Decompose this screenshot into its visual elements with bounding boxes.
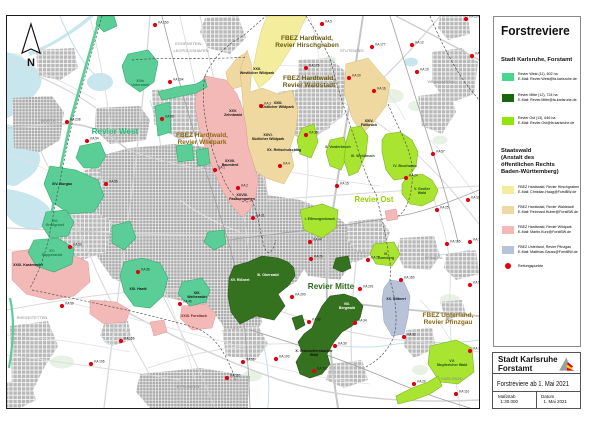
svg-text:KA 26: KA 26	[314, 255, 323, 259]
svg-text:II. Vorderbruch: II. Vorderbruch	[325, 145, 350, 149]
svg-text:KA 177: KA 177	[375, 43, 386, 47]
svg-text:KA 16: KA 16	[377, 87, 386, 91]
svg-text:KA 19: KA 19	[420, 68, 429, 72]
svg-text:Zehntwald: Zehntwald	[224, 113, 242, 117]
svg-text:KA 20: KA 20	[352, 74, 361, 78]
svg-text:KA 160: KA 160	[404, 276, 415, 280]
svg-text:KA 200: KA 200	[295, 293, 306, 297]
svg-text:KA 201: KA 201	[363, 285, 374, 289]
svg-text:KA 110: KA 110	[459, 390, 469, 394]
svg-text:RHEINSTETTEN: RHEINSTETTEN	[17, 315, 48, 320]
svg-text:KA 156: KA 156	[124, 337, 135, 341]
svg-text:EGGENSTEIN-: EGGENSTEIN-	[175, 41, 203, 46]
svg-text:KA 4: KA 4	[283, 162, 290, 166]
svg-text:KA 12: KA 12	[415, 41, 424, 45]
svg-text:KA 30: KA 30	[338, 342, 347, 346]
svg-text:Westlicher Wildpark: Westlicher Wildpark	[240, 71, 274, 75]
svg-text:XXIX. Kastenwört: XXIX. Kastenwört	[13, 263, 44, 267]
svg-text:KA 238: KA 238	[70, 118, 81, 122]
svg-text:III. Weidbruch: III. Weidbruch	[351, 154, 375, 158]
svg-text:KA 24: KA 24	[409, 174, 418, 178]
svg-text:FBEZ Hardtwald,: FBEZ Hardtwald,	[281, 35, 333, 42]
svg-text:KA 166: KA 166	[473, 238, 484, 242]
svg-text:KA 176: KA 176	[309, 64, 320, 68]
svg-text:Turmberg: Turmberg	[378, 256, 395, 260]
svg-text:WEINGARTEN: WEINGARTEN	[427, 79, 454, 84]
svg-text:Bergwald: Bergwald	[339, 306, 355, 310]
svg-text:WÖRTH: WÖRTH	[40, 118, 55, 123]
svg-text:KA 106: KA 106	[94, 360, 105, 364]
svg-text:KA 20: KA 20	[417, 380, 426, 384]
svg-text:Unterwald: Unterwald	[131, 83, 148, 87]
svg-text:KA 202: KA 202	[317, 367, 328, 371]
svg-text:STUTENSEE: STUTENSEE	[340, 48, 364, 53]
svg-text:KA 101: KA 101	[471, 196, 482, 200]
svg-text:KA 25: KA 25	[440, 206, 449, 210]
svg-text:Großgrund: Großgrund	[46, 223, 65, 227]
svg-text:KARLSBAD: KARLSBAD	[441, 376, 462, 381]
svg-text:Südlicher Wildpark: Südlicher Wildpark	[252, 137, 285, 141]
svg-text:KA 36: KA 36	[141, 268, 150, 272]
svg-text:FBEZ Unterland,: FBEZ Unterland,	[423, 312, 474, 319]
svg-text:XX. Rittnert: XX. Rittnert	[386, 297, 406, 301]
svg-text:Revier Ost: Revier Ost	[354, 195, 393, 204]
svg-text:Östlicher Wildpark: Östlicher Wildpark	[262, 104, 294, 109]
svg-text:KA 49: KA 49	[183, 300, 192, 304]
svg-text:Füllbruch: Füllbruch	[361, 123, 377, 127]
svg-text:Revier Hirschgraben: Revier Hirschgraben	[275, 42, 339, 49]
svg-text:XV. Rißnert: XV. Rißnert	[230, 278, 250, 282]
svg-text:KA 15: KA 15	[340, 182, 349, 186]
svg-text:XX. Reitschulschlag: XX. Reitschulschlag	[267, 148, 301, 152]
svg-text:KA 36: KA 36	[309, 131, 318, 135]
svg-text:Wald: Wald	[418, 191, 426, 195]
svg-text:KA 91: KA 91	[246, 358, 255, 362]
svg-text:KA 100: KA 100	[279, 355, 290, 359]
svg-text:Fasanengarten: Fasanengarten	[229, 197, 255, 201]
svg-text:LEOPOLDSHAFEN: LEOPOLDSHAFEN	[173, 48, 208, 53]
svg-text:Baumlerd: Baumlerd	[222, 163, 239, 167]
svg-text:KA 59: KA 59	[65, 302, 74, 306]
svg-text:N: N	[27, 57, 35, 69]
svg-text:Weiherwört: Weiherwört	[187, 295, 207, 299]
svg-text:KA 57: KA 57	[473, 281, 482, 285]
svg-text:Revier Pfinzgau: Revier Pfinzgau	[424, 319, 473, 326]
svg-text:FBEZ Hardtwald,: FBEZ Hardtwald,	[176, 132, 228, 139]
svg-text:Stupfericher Wald: Stupfericher Wald	[437, 363, 468, 367]
svg-text:KA 204: KA 204	[173, 78, 184, 82]
svg-text:KA 5: KA 5	[325, 20, 332, 24]
svg-text:Revier Waldstadt: Revier Waldstadt	[283, 82, 336, 89]
svg-text:FBEZ Hardtwald,: FBEZ Hardtwald,	[283, 75, 335, 82]
svg-text:Revier Wildpark: Revier Wildpark	[177, 139, 226, 146]
svg-text:KA 165: KA 165	[450, 240, 461, 244]
svg-text:KA 50: KA 50	[73, 243, 82, 247]
svg-text:XXI. Hardt: XXI. Hardt	[129, 287, 147, 291]
svg-text:KA 21: KA 21	[256, 214, 265, 218]
svg-text:Wald: Wald	[310, 353, 318, 357]
svg-text:KA 54: KA 54	[90, 137, 99, 141]
svg-text:KA 56: KA 56	[109, 180, 118, 184]
svg-text:KA 2: KA 2	[241, 184, 248, 188]
svg-text:I. Elfmorgenbruch: I. Elfmorgenbruch	[305, 217, 336, 221]
svg-text:KA 58: KA 58	[165, 115, 174, 119]
svg-text:ETTLINGEN: ETTLINGEN	[177, 384, 200, 389]
svg-text:Revier Mitte: Revier Mitte	[308, 282, 355, 291]
svg-text:KA 44: KA 44	[313, 238, 322, 242]
svg-text:XIV. Burgau: XIV. Burgau	[52, 182, 72, 186]
svg-text:KA 33: KA 33	[407, 333, 416, 337]
svg-text:KA 150: KA 150	[158, 21, 169, 25]
svg-text:XXIII. Forstlach: XXIII. Forstlach	[181, 314, 207, 318]
svg-text:Rappenwört: Rappenwört	[42, 253, 64, 257]
svg-text:Revier West: Revier West	[92, 127, 139, 136]
svg-text:KA 33: KA 33	[473, 347, 482, 351]
svg-text:IV. Bruchwald: IV. Bruchwald	[393, 164, 416, 168]
svg-text:KA 110: KA 110	[230, 374, 240, 378]
svg-text:KA 34: KA 34	[358, 319, 367, 323]
svg-text:PFINZTAL: PFINZTAL	[425, 255, 444, 260]
svg-text:KA 30: KA 30	[312, 318, 321, 322]
svg-text:III. Oberwald: III. Oberwald	[257, 273, 278, 277]
svg-text:KA 57: KA 57	[436, 150, 445, 154]
